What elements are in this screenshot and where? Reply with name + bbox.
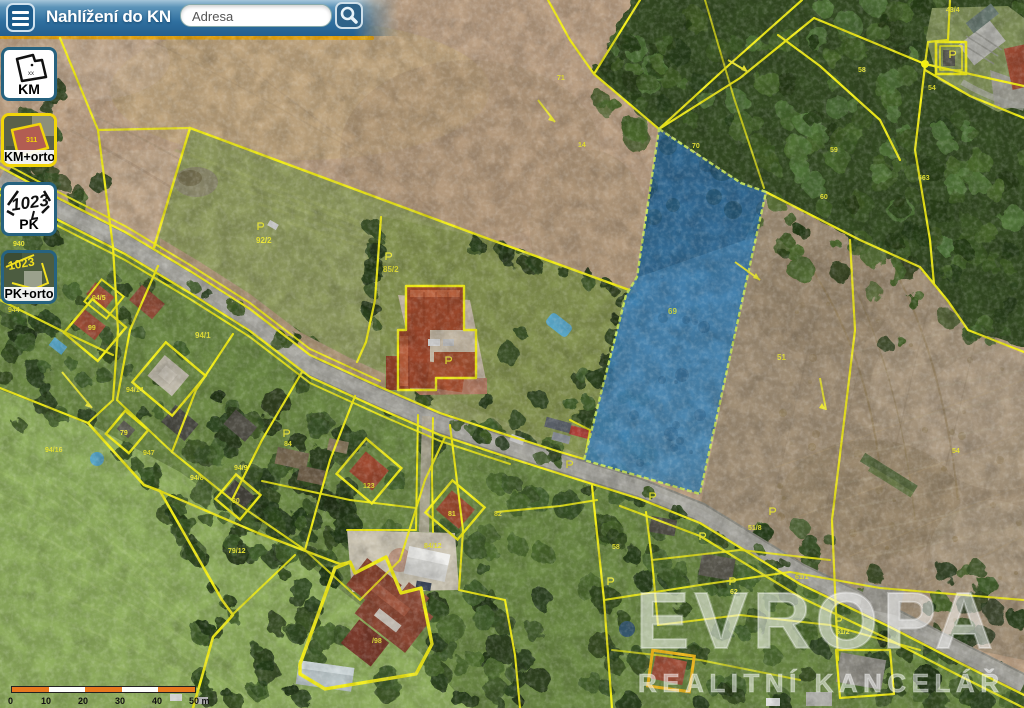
svg-text:311: 311 [26, 137, 37, 144]
svg-text:xx: xx [28, 71, 34, 77]
